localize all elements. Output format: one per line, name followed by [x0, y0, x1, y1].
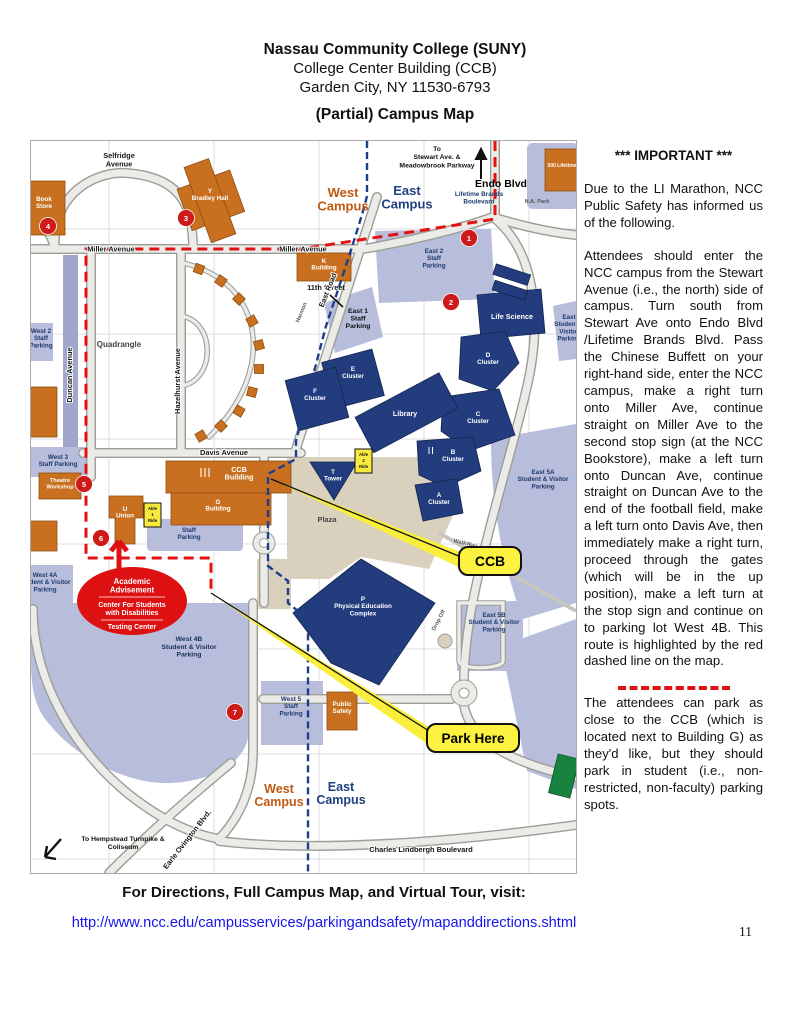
bus-stop-5: 5	[76, 476, 93, 493]
east-campus-bottom: EastCampus	[316, 780, 365, 807]
dropoff-label: Drop Off	[431, 609, 447, 632]
svg-text:2: 2	[449, 298, 453, 307]
bus-stop-4: 4	[40, 218, 57, 235]
map-directions-link[interactable]: http://www.ncc.edu/campusservices/parkin…	[72, 915, 577, 931]
campus-map: 1 2 3 4 5 6 7 Able1Ride Able2Ride Selfri…	[30, 140, 577, 874]
library-label: Library	[393, 409, 417, 418]
plaza-label: Plaza	[318, 515, 338, 524]
notice-paragraph-1: Due to the LI Marathon, NCC Public Safet…	[584, 181, 763, 232]
lifetime-500-building	[545, 149, 577, 191]
building-name: College Center Building (CCB)	[0, 59, 790, 78]
quadrangle-label: Quadrangle	[97, 340, 142, 349]
svg-text:CCB: CCB	[475, 553, 505, 569]
miller-avenue-label-east: Miller Avenue	[279, 245, 327, 254]
to-hempstead-label: To Hempstead Turnpike &Coliseum	[81, 836, 164, 851]
able-ride-2: Able2Ride	[355, 449, 372, 473]
svg-text:Park Here: Park Here	[441, 731, 505, 746]
svg-text:6: 6	[99, 534, 103, 543]
svg-text:5: 5	[82, 480, 86, 489]
footer-visit-label: For Directions, Full Campus Map, and Vir…	[0, 884, 648, 901]
west-campus-bottom: WestCampus	[254, 782, 303, 809]
svg-text:AcademicAdvisement: AcademicAdvisement	[110, 577, 155, 595]
notice-paragraph-3: The attendees can park as close to the C…	[584, 695, 763, 813]
document-header: Nassau Community College (SUNY) College …	[0, 40, 790, 97]
footer-link-wrap: http://www.ncc.edu/campusservices/parkin…	[0, 915, 648, 931]
svg-text:Testing Center: Testing Center	[108, 624, 157, 631]
endo-blvd-label: Endo Blvd	[475, 178, 527, 190]
svg-text:7: 7	[233, 708, 237, 717]
east-campus-top: EastCampus	[381, 183, 432, 212]
page-number: 11	[690, 924, 752, 940]
theatre-workshop-label: TheatreWorkshop	[46, 478, 74, 490]
charles-lindbergh-label: Charles Lindbergh Boulevard	[369, 845, 473, 854]
dropoff-circle	[438, 634, 452, 648]
hazelhurst-avenue-label: Hazelhurst Avenue	[173, 348, 182, 414]
bus-stop-6: 6	[93, 530, 110, 547]
park-here-callout: Park Here	[427, 724, 519, 752]
theatre-building	[30, 521, 57, 551]
bus-stop-3: 3	[178, 210, 195, 227]
bus-stop-1: 1	[461, 230, 478, 247]
nassau-hall-building	[30, 387, 57, 437]
to-stewart-label: ToStewart Ave. &Meadowbrook Parkway	[399, 146, 474, 169]
notice-paragraph-2: Attendees should enter the NCC campus fr…	[584, 248, 763, 671]
selfridge-avenue-label: SelfridgeAvenue	[103, 151, 135, 169]
bookstore-label: BookStore	[36, 196, 53, 210]
ccb-callout: CCB	[459, 547, 521, 575]
west-campus-top: WestCampus	[317, 185, 368, 214]
important-notice: *** IMPORTANT *** Due to the LI Marathon…	[584, 148, 763, 830]
lifetime500-label: 500 Lifetime	[548, 163, 577, 169]
lot-east5a	[491, 424, 576, 619]
davis-avenue-label: Davis Avenue	[200, 448, 248, 457]
bus-stop-2: 2	[443, 294, 460, 311]
na-park-label: N.A. Park	[525, 199, 551, 205]
address-line: Garden City, NY 11530-6793	[0, 78, 790, 97]
svg-text:1: 1	[467, 234, 471, 243]
bus-stop-7: 7	[227, 704, 244, 721]
red-dashed-separator	[618, 686, 730, 690]
duncan-avenue-label: Duncan Avenue	[65, 347, 74, 402]
svg-text:Center For Studentswith Disabi: Center For Studentswith Disabilities	[98, 602, 165, 617]
union-building	[109, 496, 143, 544]
life-science-label: Life Science	[491, 312, 533, 321]
north-arrow-icon	[476, 149, 486, 179]
college-name: Nassau Community College (SUNY)	[0, 40, 790, 59]
miller-avenue-label-west: Miller Avenue	[87, 245, 135, 254]
harmon-label: Harmon	[295, 301, 309, 323]
advisement-arrow-icon	[111, 541, 127, 569]
map-title: (Partial) Campus Map	[0, 106, 790, 124]
able-ride-1: Able1Ride	[144, 503, 161, 527]
hempstead-arrow-icon	[45, 839, 61, 859]
notice-title: *** IMPORTANT ***	[584, 148, 763, 163]
svg-text:3: 3	[184, 214, 188, 223]
public-safety-label: PublicSafety	[333, 701, 352, 715]
advisement-callout: AcademicAdvisement Center For Studentswi…	[77, 541, 187, 635]
